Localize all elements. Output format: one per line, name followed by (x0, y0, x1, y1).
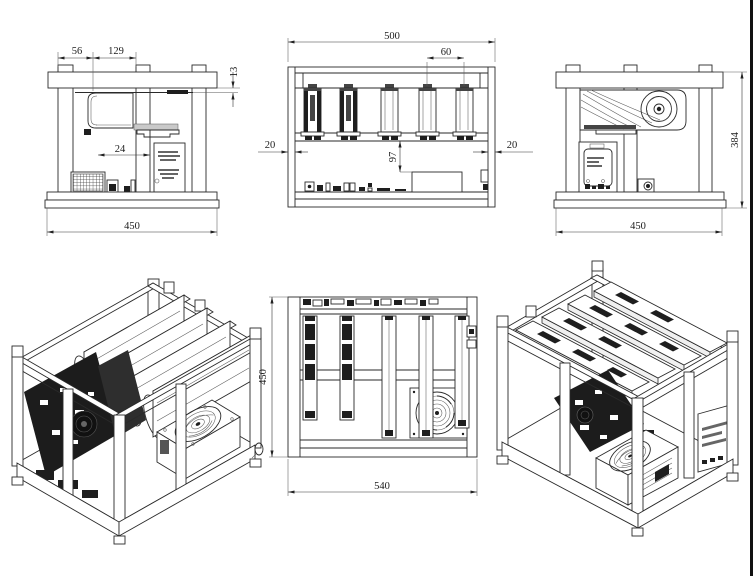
note-box (154, 143, 185, 192)
dim-13: 13 (229, 67, 240, 78)
psu-front (412, 172, 462, 192)
dim-20-left: 20 (265, 140, 276, 151)
gpu-card-side (88, 93, 133, 128)
psu-side (71, 172, 105, 193)
technical-drawing-page: 56 129 13 24 450 (0, 0, 753, 576)
dim-384: 384 (730, 131, 741, 148)
dim-56: 56 (72, 46, 83, 57)
dim-60: 60 (441, 47, 452, 58)
base-beam (556, 192, 724, 200)
view-plan: 450 540 (252, 297, 477, 496)
base-beam (47, 192, 217, 200)
gpu-card-2 (337, 84, 360, 140)
gpu-bar-top (340, 316, 354, 420)
top-beam (48, 72, 217, 88)
gpu-card-5 (453, 84, 476, 140)
gpu-card-3 (378, 84, 401, 140)
pump (638, 179, 654, 193)
dim-450-left: 450 (124, 221, 140, 232)
gpu-with-fan (580, 90, 686, 134)
dim-129: 129 (108, 46, 124, 57)
view-front: 500 60 20 20 97 (258, 31, 533, 207)
dim-450-right: 450 (630, 221, 646, 232)
dim-500: 500 (384, 31, 400, 42)
view-iso-left (12, 279, 261, 544)
top-beam (556, 72, 723, 88)
view-side-left: 56 129 13 24 450 (45, 46, 240, 236)
gpu-card-4 (416, 84, 439, 140)
dim-450-plan: 450 (258, 369, 269, 385)
gpu-bar-top (303, 316, 317, 420)
gpu-card-1 (301, 84, 324, 140)
gpu-bar-top (382, 316, 396, 438)
fan-icon (641, 91, 677, 127)
view-iso-right (497, 261, 738, 536)
view-side-right: 450 384 (554, 65, 747, 236)
dim-540: 540 (374, 481, 390, 492)
gpu-bar-top (419, 316, 433, 438)
cooler-box (579, 142, 617, 193)
drawing-canvas: 56 129 13 24 450 (0, 0, 753, 576)
dim-20-right: 20 (507, 140, 518, 151)
dim-97: 97 (388, 152, 399, 163)
dim-24: 24 (115, 144, 126, 155)
